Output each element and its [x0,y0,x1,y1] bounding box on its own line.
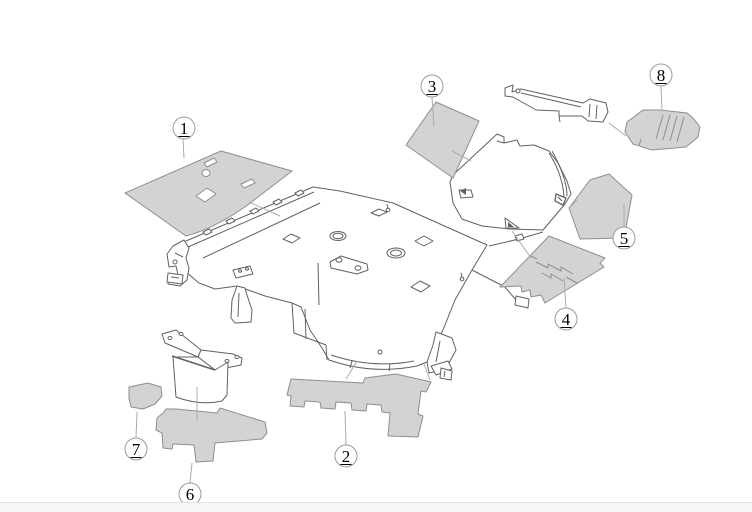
floor-hole [391,250,402,256]
callout-2-label[interactable]: 2 [342,447,351,466]
footer-bar [0,502,752,512]
clip-symbol [460,277,464,281]
part-6-shape [156,408,267,462]
lower-bracket-hole [235,356,239,359]
callout-8-label[interactable]: 8 [657,66,666,85]
left-leg-foot [167,273,183,284]
callout-4[interactable]: 4 [555,308,577,330]
leader-line-7 [136,412,137,438]
parts-diagram-page: 12345678 [0,0,752,512]
quarter-panel [450,134,571,230]
leader-line-2 [345,411,346,445]
rear-rail-bracket [515,296,529,308]
leader-line-8b [609,123,626,136]
part-1-cutout [202,170,210,177]
seat-bolt [355,266,361,270]
part-2-shape [287,374,431,437]
callout-3[interactable]: 3 [421,75,443,97]
lower-bracket-hole [179,333,183,336]
callout-2[interactable]: 2 [335,445,357,467]
left-pillar-leg [231,286,252,323]
left-bracket-hole [173,260,177,264]
pillar-bolt [246,268,249,270]
sill-clip [378,350,382,354]
diagram-canvas: 12345678 [0,0,752,512]
callout-5-label[interactable]: 5 [620,229,629,248]
callout-4-label[interactable]: 4 [562,310,571,329]
callout-1-label[interactable]: 1 [180,119,189,138]
upper-bracket-tab [559,116,560,122]
floor-hole [333,233,343,238]
seat-bolt [336,258,342,262]
clip-symbol [386,208,390,212]
leader-line-6b [190,463,192,483]
callout-5[interactable]: 5 [613,227,635,249]
part-7-shape [129,383,162,409]
upper-bracket-hole [516,89,520,93]
leader-line-1 [183,139,184,158]
pillar-bolt [239,270,242,272]
callout-7-label[interactable]: 7 [132,440,141,459]
callout-1[interactable]: 1 [173,117,195,139]
lower-bracket-hole [168,337,172,340]
callout-8[interactable]: 8 [650,64,672,86]
leader-line-8 [661,86,662,111]
part-4-shape [500,236,605,303]
callout-3-label[interactable]: 3 [428,77,437,96]
callout-7[interactable]: 7 [125,438,147,460]
